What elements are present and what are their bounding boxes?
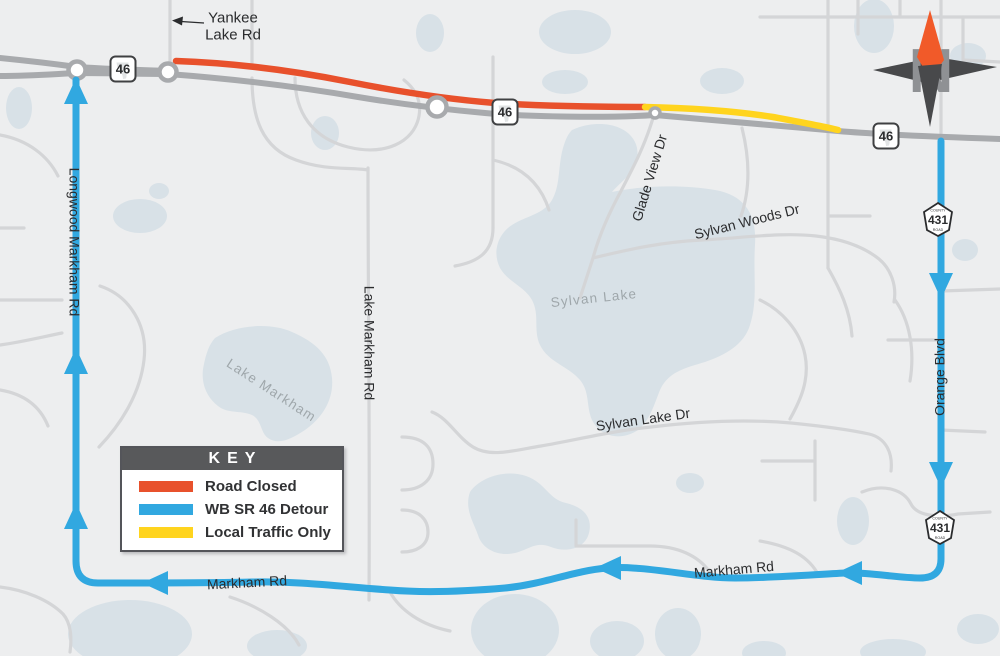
cr431-shield-top: COUNTY [932, 517, 948, 521]
callout-yankee-lake-rd: Yankee Lake Rd [205, 11, 261, 44]
map-key-legend: KEY Road Closed WB SR 46 Detour Local Tr… [120, 446, 344, 552]
sr46-shield: 46 [492, 99, 519, 126]
cr431-shield-top: COUNTY [930, 209, 946, 213]
legend-item-label: Local Traffic Only [205, 524, 331, 541]
detour-arrow-left [595, 556, 621, 580]
legend-title: KEY [122, 448, 342, 470]
callout-arrow [172, 17, 204, 26]
detour-swatch [139, 504, 193, 515]
sr46-shield-number: 46 [879, 129, 893, 144]
sr46-shield: 46 [873, 123, 900, 150]
cr431-shield: COUNTY 431 ROAD [922, 202, 954, 238]
road-closed-swatch [139, 481, 193, 492]
label-lake-markham-rd: Lake Markham Rd [361, 286, 376, 400]
cr431-shield-number: 431 [930, 521, 950, 535]
sr46-shield: 46 [110, 56, 137, 83]
label-longwood-markham-rd: Longwood Markham Rd [66, 168, 81, 317]
label-orange-blvd: Orange Blvd [932, 338, 947, 416]
sr46-shield-number: 46 [498, 105, 512, 120]
sylvan-lake-water [496, 124, 755, 436]
roundabout-icon [428, 98, 447, 117]
cr431-shield: COUNTY 431 ROAD [924, 510, 956, 546]
legend-item-road-closed: Road Closed [139, 478, 334, 495]
callout-line1: Yankee [205, 11, 261, 28]
detour-arrow-down [929, 462, 953, 488]
local-traffic-swatch [139, 527, 193, 538]
detour-arrow-down [929, 273, 953, 299]
junction-icon [650, 108, 660, 118]
detour-arrow-left [836, 561, 862, 585]
legend-item-label: Road Closed [205, 478, 297, 495]
detour-arrow-up [64, 348, 88, 374]
detour-arrow-left [142, 571, 168, 595]
legend-item-label: WB SR 46 Detour [205, 501, 328, 518]
sr46-shield-number: 46 [116, 62, 130, 77]
legend-item-local-traffic: Local Traffic Only [139, 524, 334, 541]
cr431-shield-bottom: ROAD [933, 228, 944, 232]
cr431-shield-number: 431 [928, 213, 948, 227]
detour-arrow-up [64, 78, 88, 104]
roundabout-icon [69, 62, 86, 79]
cr431-shield-bottom: ROAD [935, 536, 946, 540]
callout-line2: Lake Rd [205, 27, 261, 44]
detour-arrow-up [64, 503, 88, 529]
roundabout-icon [160, 64, 177, 81]
legend-item-detour: WB SR 46 Detour [139, 501, 334, 518]
detour-map: N Yankee Lake Rd Glade View Dr Sylvan Wo… [0, 0, 1000, 656]
